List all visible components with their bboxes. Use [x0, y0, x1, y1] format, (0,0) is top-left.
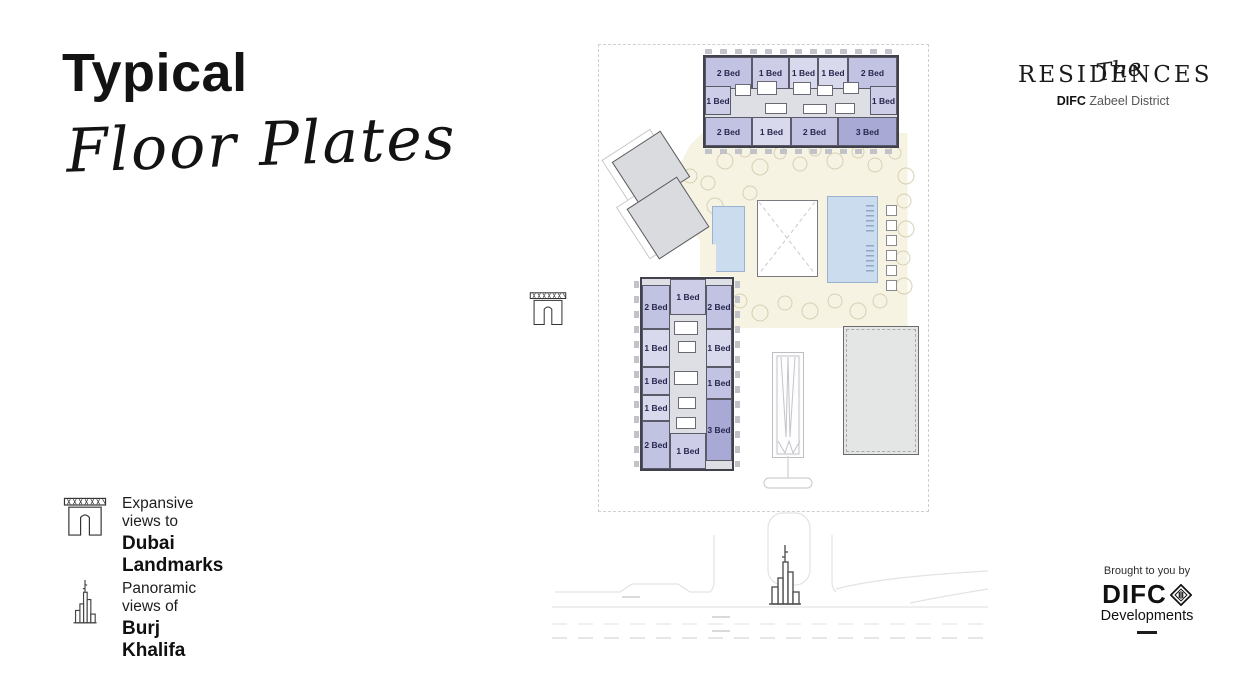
facade-balconies: [634, 281, 639, 467]
burj-khalifa-icon: [763, 540, 807, 608]
title-line-1: Typical: [62, 42, 457, 104]
unit: 2 Bed: [791, 117, 838, 146]
unit: 1 Bed: [752, 117, 791, 146]
unit: 1 Bed: [706, 329, 732, 367]
footer-org-name: DIFC: [1102, 579, 1167, 610]
lounger: [886, 205, 897, 216]
west-wing: 1 Bed 2 Bed 2 Bed 1 Bed 1 Bed 1 Bed 1 Be…: [640, 277, 734, 471]
unit: 1 Bed: [670, 433, 706, 469]
facade-balconies: [705, 149, 897, 154]
unit: 1 Bed: [870, 86, 897, 115]
adjacent-plot-building: [843, 326, 919, 455]
legend-text-bold: Burj Khalifa: [122, 618, 196, 662]
legend-text: Expansive views to: [122, 495, 223, 531]
driveway-marker: [758, 456, 820, 494]
footer-org: DIFC: [1102, 579, 1192, 610]
legend-text: Panoramic views of: [122, 580, 196, 616]
brand-subtitle: DIFC Zabeel District: [1018, 94, 1208, 108]
facade-balconies: [735, 281, 740, 467]
north-wing: 2 Bed 1 Bed 1 Bed 1 Bed 2 Bed 1 Bed 1 Be…: [703, 55, 899, 148]
title-line-2: Floor Plates: [65, 103, 458, 187]
dubai-frame-icon: [529, 288, 567, 328]
unit: 3 Bed: [706, 399, 732, 461]
skylight: [757, 200, 818, 277]
footer-org-sub: Developments: [1082, 608, 1212, 624]
brand-district: Zabeel District: [1089, 94, 1169, 108]
unit: 1 Bed: [642, 329, 670, 367]
facade-balconies: [705, 49, 897, 54]
residences-logo: The RESIDENCES DIFC Zabeel District: [1018, 40, 1208, 108]
footer-tagline: Brought to you by: [1082, 565, 1212, 577]
difc-diamond-icon: [1170, 584, 1192, 606]
unit: 2 Bed: [705, 117, 752, 146]
unit: 3 Bed: [838, 117, 897, 146]
unit: 1 Bed: [705, 86, 731, 115]
legend-text-bold: Dubai Landmarks: [122, 533, 223, 577]
unit: 2 Bed: [706, 285, 732, 329]
entrance-canopy: [772, 352, 804, 458]
lounger: [886, 280, 897, 291]
lounger: [886, 265, 897, 276]
brand-org: DIFC: [1057, 94, 1086, 108]
unit: 2 Bed: [642, 421, 670, 469]
dubai-frame-icon: [63, 494, 107, 538]
difc-developments-logo: Brought to you by DIFC Developments: [1082, 565, 1212, 634]
unit: 1 Bed: [642, 367, 670, 395]
unit: 1 Bed: [642, 395, 670, 421]
burj-khalifa-icon: [69, 570, 101, 632]
page-title: Typical Floor Plates: [62, 42, 457, 180]
plunge-pool: [712, 206, 745, 272]
unit: 1 Bed: [706, 367, 732, 399]
lounger: [886, 220, 897, 231]
swimming-pool: [827, 196, 878, 283]
slide: Typical Floor Plates The RESIDENCES DIFC…: [0, 0, 1252, 688]
unit: 1 Bed: [670, 279, 706, 315]
footer-dash: [1137, 631, 1157, 634]
unit: 2 Bed: [642, 285, 670, 329]
lounger: [886, 250, 897, 261]
lounger: [886, 235, 897, 246]
